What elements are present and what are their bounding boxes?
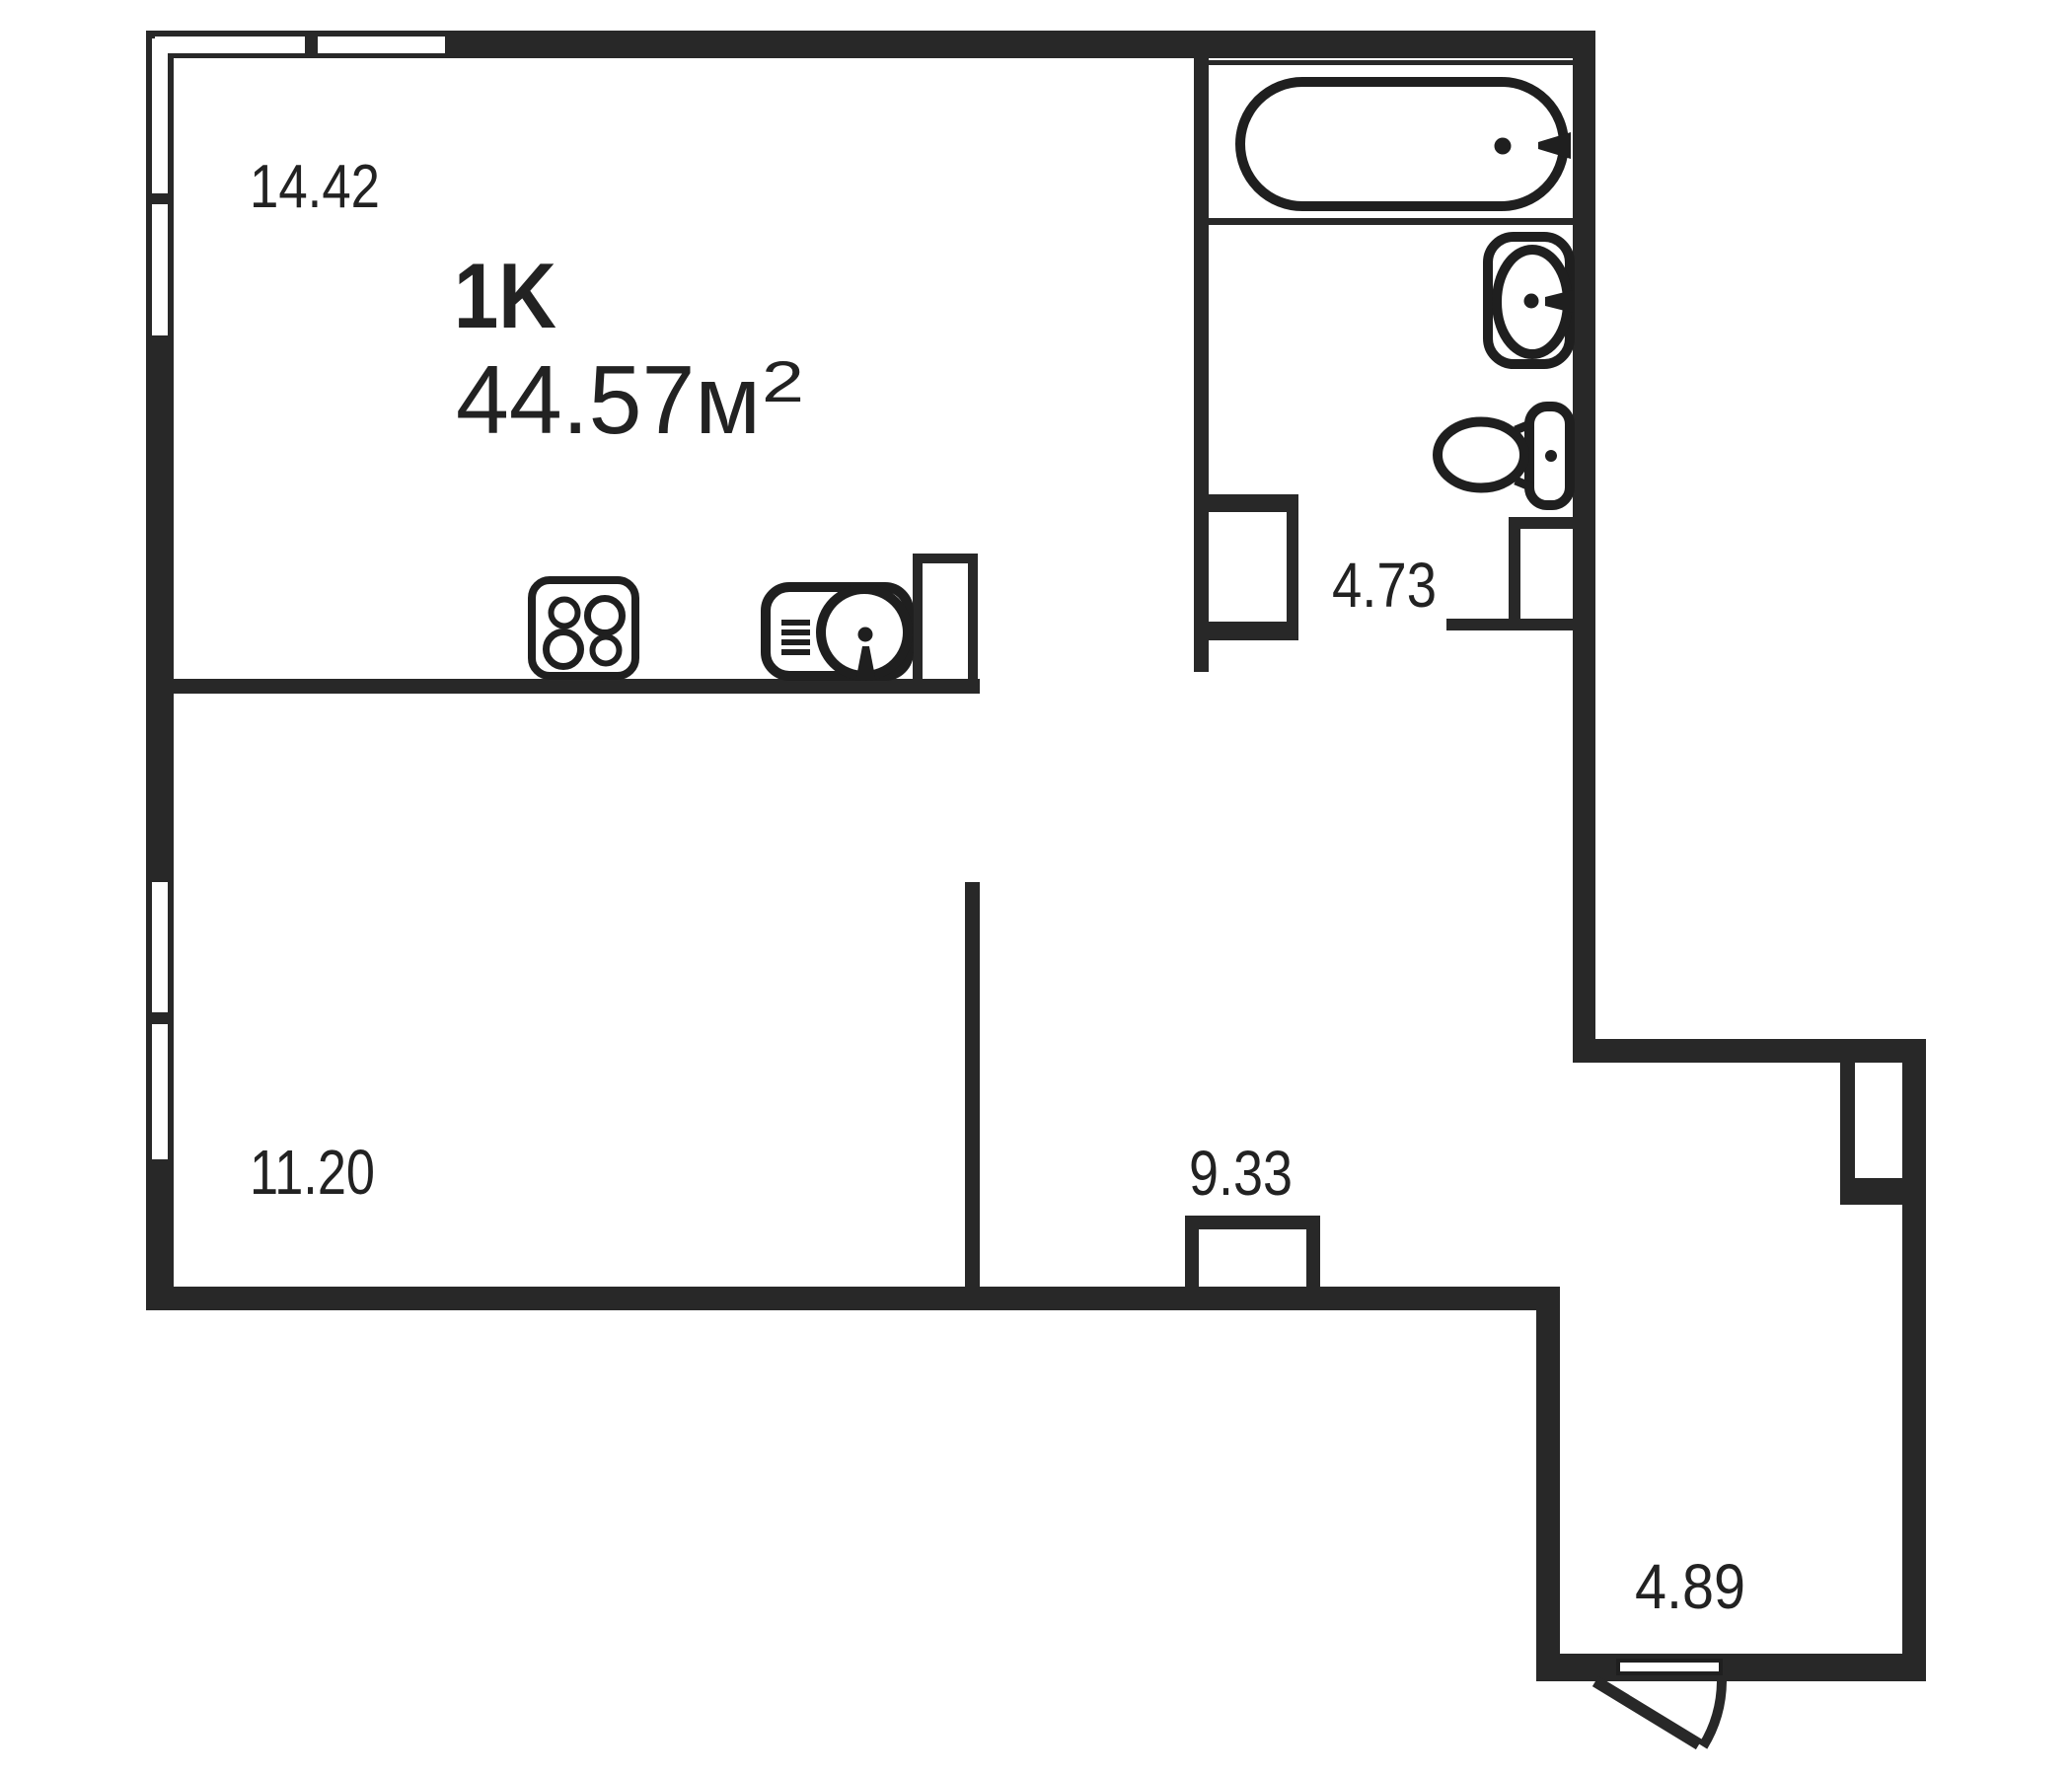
svg-text:44.57м: 44.57м xyxy=(456,345,761,454)
svg-text:1K: 1K xyxy=(454,244,556,347)
svg-text:11.20: 11.20 xyxy=(250,1137,375,1208)
svg-text:2: 2 xyxy=(762,350,804,414)
svg-text:4.89: 4.89 xyxy=(1635,1551,1745,1622)
svg-text:9.33: 9.33 xyxy=(1189,1138,1293,1209)
svg-text:4.73: 4.73 xyxy=(1332,550,1437,621)
svg-text:14.42: 14.42 xyxy=(250,153,380,221)
